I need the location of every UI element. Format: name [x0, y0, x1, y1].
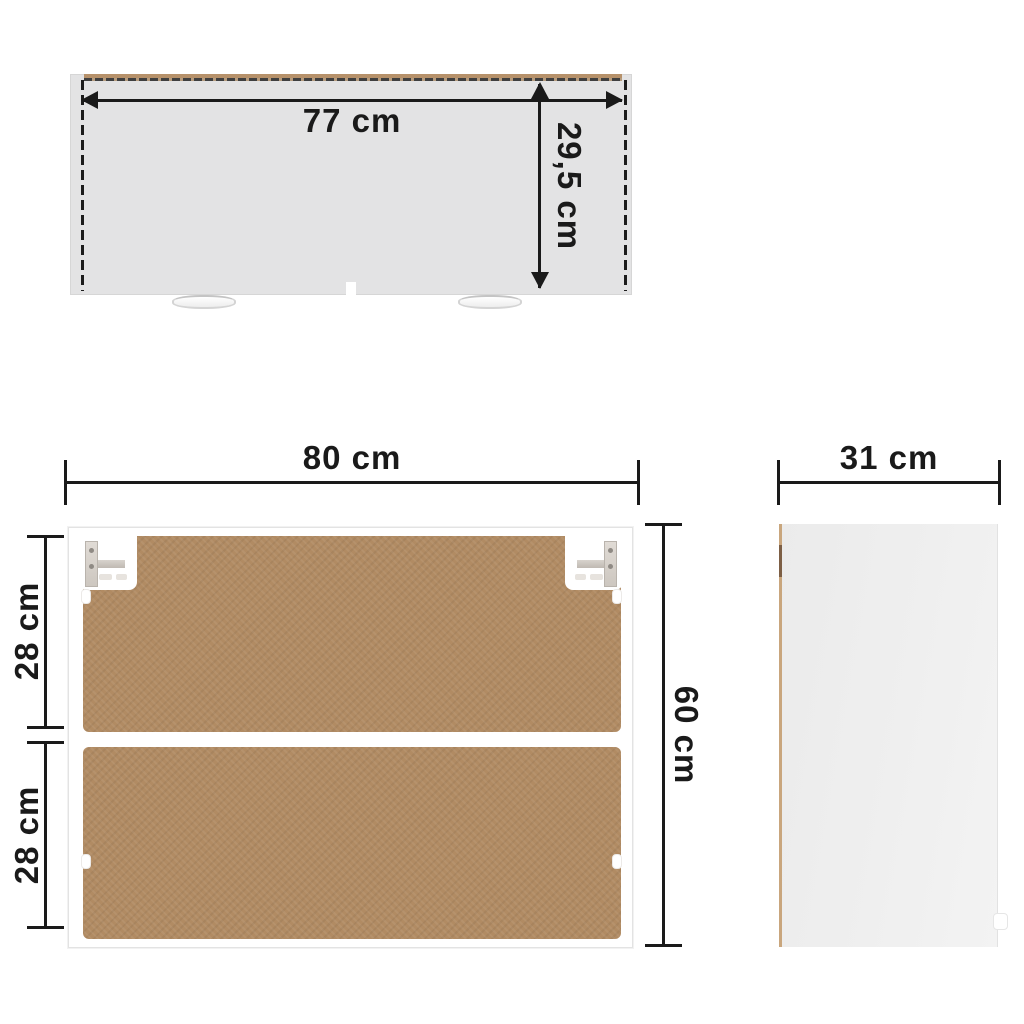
- shelf-pin: [81, 589, 91, 604]
- arrow-head-up-icon: [531, 82, 549, 99]
- shelf-pin: [612, 854, 622, 869]
- top-view-dashed-line-left: [81, 80, 84, 291]
- top-depth-label: 29,5 cm: [550, 122, 588, 250]
- top-view-center-notch: [346, 282, 356, 295]
- lower-section-cap-top: [27, 741, 64, 744]
- lower-section-label: 28 cm: [8, 786, 46, 885]
- front-height-line: [662, 523, 665, 947]
- hinge-slot: [99, 574, 112, 580]
- hinge-plate-icon: [604, 541, 617, 587]
- wall-bracket-tab: [993, 913, 1008, 930]
- hinge-mount-left: [79, 536, 137, 590]
- side-panel-front-edge: [779, 524, 782, 947]
- back-board-lower: [83, 747, 621, 939]
- depth-dimension-arrow: [538, 84, 541, 288]
- screw-icon: [608, 564, 613, 569]
- lower-section-cap-bottom: [27, 926, 64, 929]
- arrow-head-down-icon: [531, 272, 549, 289]
- back-board-upper: [83, 536, 621, 732]
- upper-section-label: 28 cm: [8, 582, 46, 681]
- front-height-cap-bottom: [645, 944, 682, 947]
- hinge-plate-icon: [85, 541, 98, 587]
- arrow-head-left-icon: [81, 91, 98, 109]
- hinge-slot: [575, 574, 586, 580]
- side-panel-edge-detail: [779, 545, 782, 577]
- upper-section-cap-bottom: [27, 726, 64, 729]
- arrow-head-right-icon: [606, 91, 623, 109]
- hinge-mount-right: [565, 536, 623, 590]
- hinge-cap-right: [458, 295, 522, 309]
- screw-icon: [608, 548, 613, 553]
- product-dimension-diagram: 77 cm 29,5 cm 80 cm: [0, 0, 1024, 1024]
- top-view-hinge-teeth: [84, 78, 622, 81]
- upper-section-cap-top: [27, 535, 64, 538]
- front-width-label: 80 cm: [303, 439, 402, 477]
- hinge-cap-left: [172, 295, 236, 309]
- front-height-label: 60 cm: [667, 686, 705, 785]
- screw-icon: [89, 548, 94, 553]
- hinge-slot: [116, 574, 127, 580]
- top-width-label: 77 cm: [303, 102, 402, 140]
- shelf-pin: [612, 589, 622, 604]
- shelf-pin: [81, 854, 91, 869]
- front-height-cap-top: [645, 523, 682, 526]
- hinge-arm-icon: [577, 560, 604, 568]
- front-width-line: [64, 481, 640, 484]
- hinge-arm-icon: [98, 560, 125, 568]
- side-depth-label: 31 cm: [840, 439, 939, 477]
- top-view-dashed-line-right: [624, 80, 627, 291]
- side-depth-line: [777, 481, 1001, 484]
- hinge-slot: [590, 574, 603, 580]
- cabinet-front: [68, 527, 633, 948]
- cabinet-side-panel: [779, 524, 998, 947]
- screw-icon: [89, 564, 94, 569]
